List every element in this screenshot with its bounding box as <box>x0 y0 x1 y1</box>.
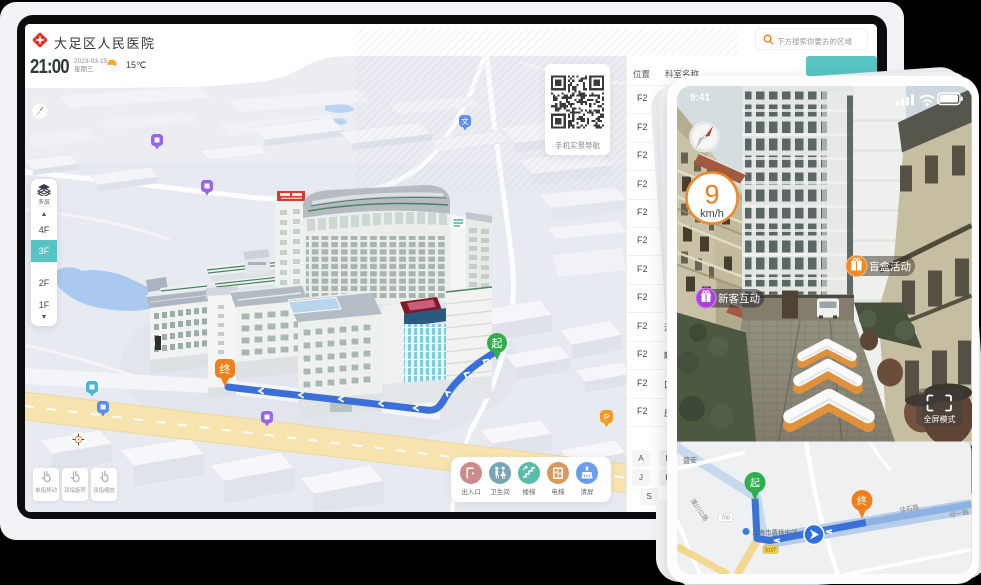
svg-text:9: 9 <box>704 179 719 209</box>
svg-text:km/h: km/h <box>700 208 724 220</box>
svg-text:终: 终 <box>220 362 231 376</box>
svg-text:起: 起 <box>492 337 503 350</box>
svg-text:9:41: 9:41 <box>690 92 710 103</box>
svg-text:起: 起 <box>750 477 760 489</box>
svg-text:全屏模式: 全屏模式 <box>924 414 956 424</box>
svg-text:上海市曹杨中学: 上海市曹杨中学 <box>752 527 798 536</box>
svg-text:盛安: 盛安 <box>683 455 697 464</box>
svg-text:P: P <box>604 413 609 422</box>
svg-text:盲盒活动: 盲盒活动 <box>869 260 911 273</box>
svg-text:新客互动: 新客互动 <box>718 292 760 305</box>
svg-text:终: 终 <box>857 494 867 507</box>
svg-text:S107: S107 <box>765 547 777 553</box>
svg-text:700: 700 <box>721 515 730 521</box>
